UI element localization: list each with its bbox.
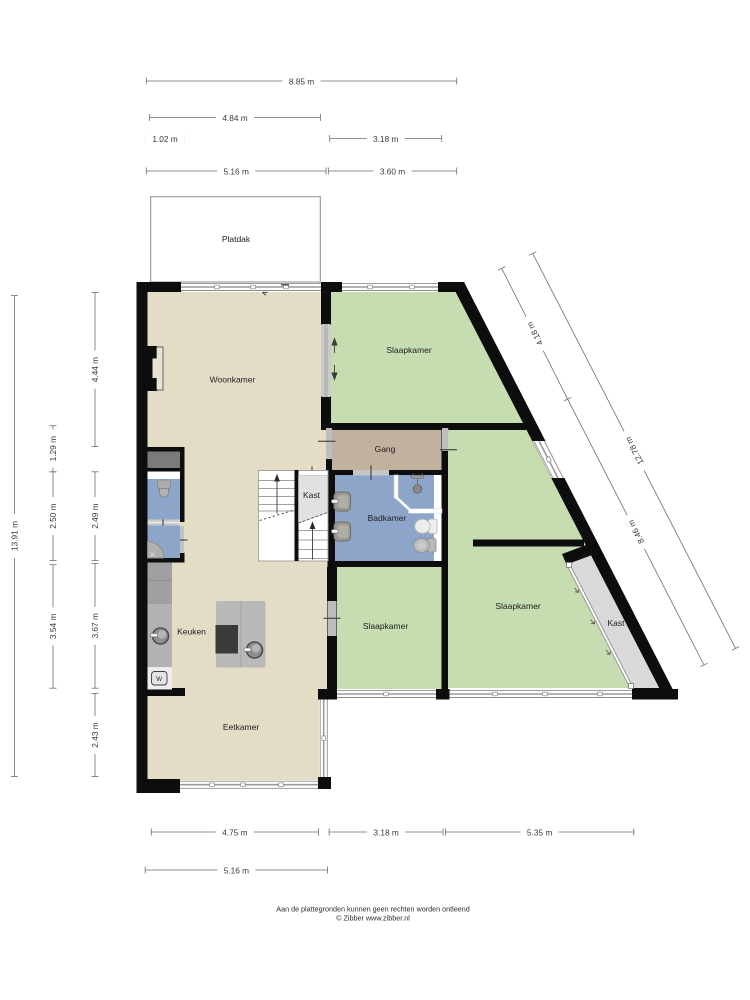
svg-text:13.91 m: 13.91 m — [10, 521, 20, 551]
svg-text:4.75 m: 4.75 m — [222, 827, 247, 837]
svg-text:3.18 m: 3.18 m — [373, 134, 398, 144]
svg-text:Slaapkamer: Slaapkamer — [495, 601, 541, 611]
svg-text:Kast: Kast — [607, 618, 625, 628]
svg-text:4.44 m: 4.44 m — [90, 357, 100, 382]
svg-text:1.02 m: 1.02 m — [152, 134, 177, 144]
svg-text:Badkamer: Badkamer — [368, 513, 407, 523]
svg-text:© Zibber www.zibber.nl: © Zibber www.zibber.nl — [336, 914, 410, 923]
svg-text:Kast: Kast — [303, 490, 321, 500]
svg-text:Keuken: Keuken — [177, 627, 206, 637]
svg-text:Aan de plattegronden kunnen ge: Aan de plattegronden kunnen geen rechten… — [276, 905, 469, 914]
svg-text:5.16 m: 5.16 m — [224, 166, 249, 176]
svg-text:3.60 m: 3.60 m — [380, 166, 405, 176]
svg-text:Woonkamer: Woonkamer — [210, 375, 256, 385]
svg-text:3.54 m: 3.54 m — [48, 614, 58, 639]
svg-text:3.67 m: 3.67 m — [90, 613, 100, 638]
svg-text:Slaapkamer: Slaapkamer — [386, 345, 432, 355]
svg-text:1.29 m: 1.29 m — [48, 436, 58, 461]
svg-text:8.85 m: 8.85 m — [289, 76, 314, 86]
svg-text:5.16 m: 5.16 m — [224, 865, 249, 875]
svg-text:2.43 m: 2.43 m — [90, 722, 100, 747]
svg-text:Gang: Gang — [375, 444, 396, 454]
svg-text:5.35 m: 5.35 m — [527, 827, 552, 837]
svg-text:2.50 m: 2.50 m — [48, 503, 58, 528]
svg-text:W: W — [156, 676, 162, 683]
svg-text:Slaapkamer: Slaapkamer — [363, 621, 409, 631]
svg-text:2.49 m: 2.49 m — [90, 503, 100, 528]
svg-text:4.84 m: 4.84 m — [222, 113, 247, 123]
svg-text:Eetkamer: Eetkamer — [223, 722, 260, 732]
svg-text:3.18 m: 3.18 m — [373, 827, 398, 837]
svg-text:Platdak: Platdak — [222, 234, 251, 244]
